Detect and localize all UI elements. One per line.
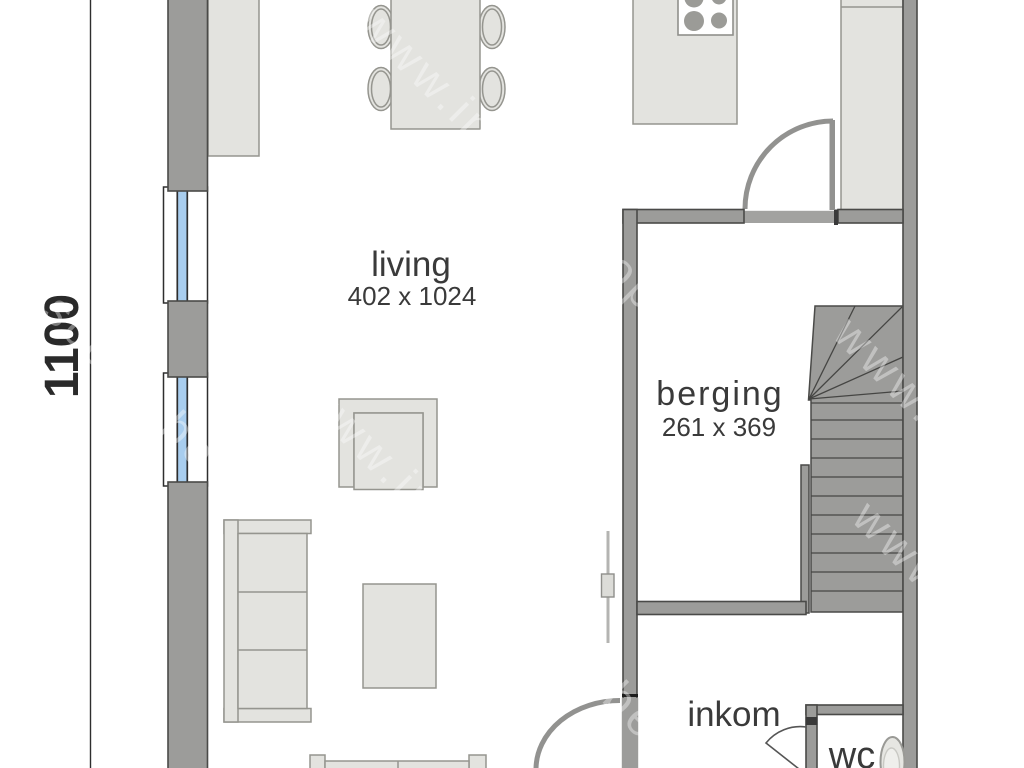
svg-text:402 x 1024: 402 x 1024 — [348, 281, 477, 311]
svg-text:berging: berging — [656, 375, 783, 413]
svg-text:261 x 369: 261 x 369 — [662, 412, 776, 442]
svg-text:living: living — [371, 245, 451, 284]
svg-text:inkom: inkom — [687, 695, 780, 734]
svg-text:wc: wc — [828, 735, 875, 768]
